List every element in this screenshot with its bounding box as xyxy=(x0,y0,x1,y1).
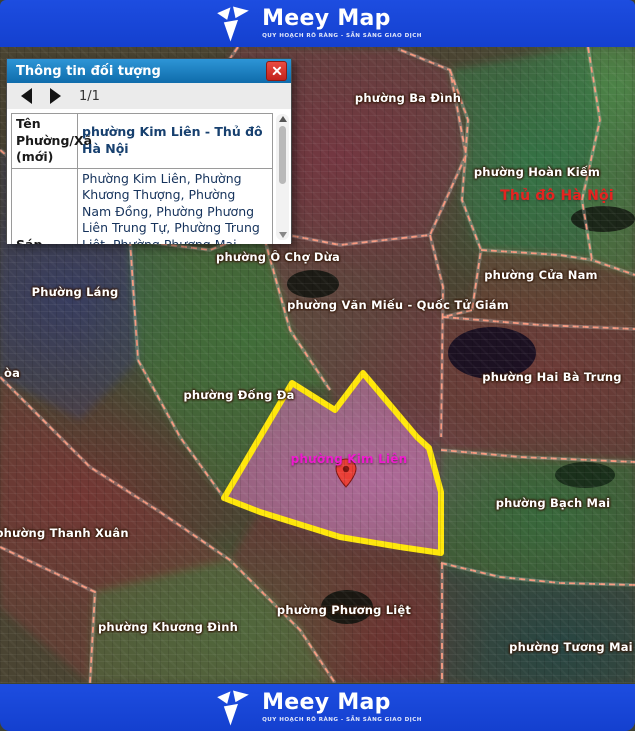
row-label: Tên Phường/Xã (mới) xyxy=(12,114,78,169)
object-info-table: Tên Phường/Xã (mới) phường Kim Liên - Th… xyxy=(11,113,273,244)
meey-map-app: Meey Map QUY HOẠCH RÕ RÀNG - SẴN SÀNG GI… xyxy=(0,0,635,731)
footer-brand-bar: Meey Map QUY HOẠCH RÕ RÀNG - SẴN SÀNG GI… xyxy=(0,684,635,731)
popup-title: Thông tin đối tượng xyxy=(16,64,161,79)
object-info-popup: Thông tin đối tượng 1/1 Tên Phường/Xã (m… xyxy=(6,58,292,243)
brand-name: Meey Map xyxy=(262,692,422,714)
meey-map-logo[interactable]: Meey Map QUY HOẠCH RÕ RÀNG - SẴN SÀNG GI… xyxy=(213,3,422,45)
meey-map-logo-icon xyxy=(213,687,253,729)
row-value: Phường Kim Liên, Phường Khương Thượng, P… xyxy=(78,168,273,244)
row-value: phường Kim Liên - Thủ đô Hà Nội xyxy=(78,114,273,169)
prev-page-button[interactable] xyxy=(21,88,32,104)
brand-tagline: QUY HOẠCH RÕ RÀNG - SẴN SÀNG GIAO DỊCH xyxy=(262,34,422,40)
meey-map-logo-footer[interactable]: Meey Map QUY HOẠCH RÕ RÀNG - SẴN SÀNG GI… xyxy=(213,687,422,729)
scroll-up-icon[interactable] xyxy=(279,116,287,122)
popup-pager-bar: 1/1 xyxy=(7,83,291,109)
meey-map-logo-icon xyxy=(213,3,253,45)
table-row: Tên Phường/Xã (mới) phường Kim Liên - Th… xyxy=(12,114,273,169)
scroll-down-icon[interactable] xyxy=(279,232,287,238)
popup-title-bar[interactable]: Thông tin đối tượng xyxy=(7,59,291,83)
brand-tagline: QUY HOẠCH RÕ RÀNG - SẴN SÀNG GIAO DỊCH xyxy=(262,718,422,724)
row-label: Sáp nhập từ: xyxy=(12,168,78,244)
close-icon[interactable] xyxy=(266,61,287,81)
popup-body: Tên Phường/Xã (mới) phường Kim Liên - Th… xyxy=(7,109,291,244)
scrollbar-thumb[interactable] xyxy=(279,126,286,184)
logo-text: Meey Map QUY HOẠCH RÕ RÀNG - SẴN SÀNG GI… xyxy=(262,8,422,40)
header-brand-bar: Meey Map QUY HOẠCH RÕ RÀNG - SẴN SÀNG GI… xyxy=(0,0,635,47)
logo-text: Meey Map QUY HOẠCH RÕ RÀNG - SẴN SÀNG GI… xyxy=(262,692,422,724)
popup-scrollbar[interactable] xyxy=(276,114,289,240)
page-indicator: 1/1 xyxy=(79,89,100,104)
next-page-button[interactable] xyxy=(50,88,61,104)
table-row: Sáp nhập từ: Phường Kim Liên, Phường Khư… xyxy=(12,168,273,244)
brand-name: Meey Map xyxy=(262,8,422,30)
